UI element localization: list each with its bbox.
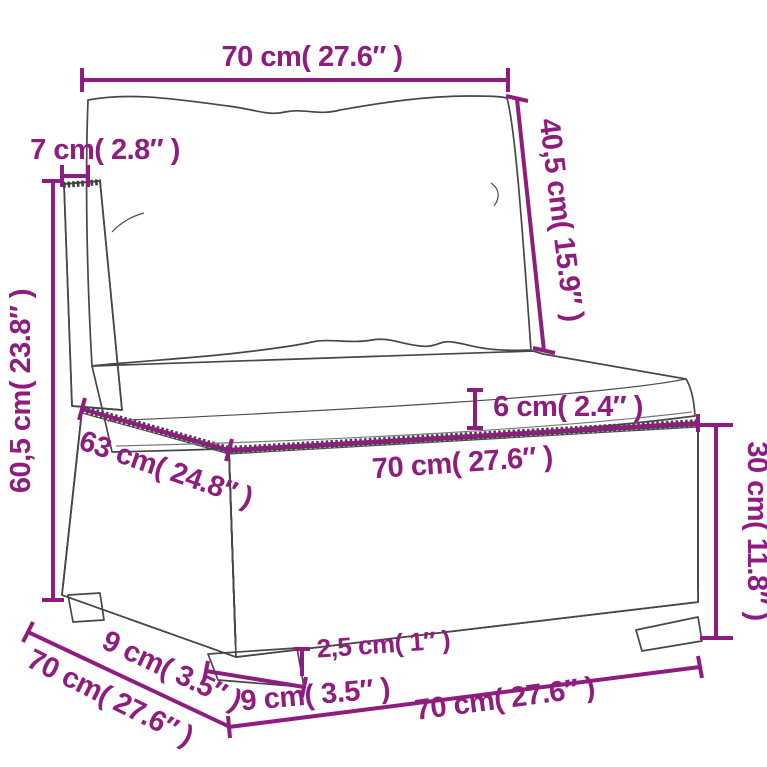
- base-front-plinth: [233, 590, 698, 657]
- dimension-diagram: 70 cm( 27.6″ ) 7 cm( 2.8″ ) 40,5 cm( 15.…: [0, 0, 767, 767]
- cushion-fold-line: [491, 183, 498, 206]
- dim-seat-cushion-thickness-label: 6 cm( 2.4″ ): [493, 391, 643, 423]
- dim-base-height-label: 30 cm( 11.8″ ): [741, 441, 767, 620]
- dim-back-cushion-length: 40,5 cm( 15.9″ ): [506, 96, 589, 353]
- front-right-leg: [636, 617, 702, 651]
- rattan-weave-back-frame: [64, 181, 122, 410]
- dim-seat-cushion-thickness: 6 cm( 2.4″ ): [467, 390, 643, 428]
- dimension-annotations: 70 cm( 27.6″ ) 7 cm( 2.8″ ) 40,5 cm( 15.…: [5, 41, 767, 753]
- dim-back-frame-depth-label: 7 cm( 2.8″ ): [30, 134, 180, 166]
- sofa-line-drawing: 70 cm( 27.6″ ) 7 cm( 2.8″ ) 40,5 cm( 15.…: [0, 0, 767, 767]
- dim-leg-height-label: 2,5 cm( 1″ ): [316, 624, 451, 663]
- dim-back-height: 60,5 cm( 23.8″ ): [5, 181, 64, 600]
- dim-overall-width-label: 70 cm( 27.6″ ): [413, 671, 597, 726]
- dim-back-cushion-length-label: 40,5 cm( 15.9″ ): [533, 117, 590, 324]
- dim-back-height-label: 60,5 cm( 23.8″ ): [5, 289, 37, 493]
- dim-back-width: 70 cm( 27.6″ ): [82, 41, 508, 92]
- back-frame-top-trim: [63, 182, 101, 185]
- dim-leg-height: 2,5 cm( 1″ ): [294, 624, 451, 676]
- cushion-fold-line: [112, 213, 144, 232]
- dim-base-height: 30 cm( 11.8″ ): [700, 425, 767, 638]
- dim-back-width-label: 70 cm( 27.6″ ): [222, 41, 403, 73]
- back-frame-column: [63, 181, 122, 410]
- dim-seat-width-label: 70 cm( 27.6″ ): [371, 441, 554, 486]
